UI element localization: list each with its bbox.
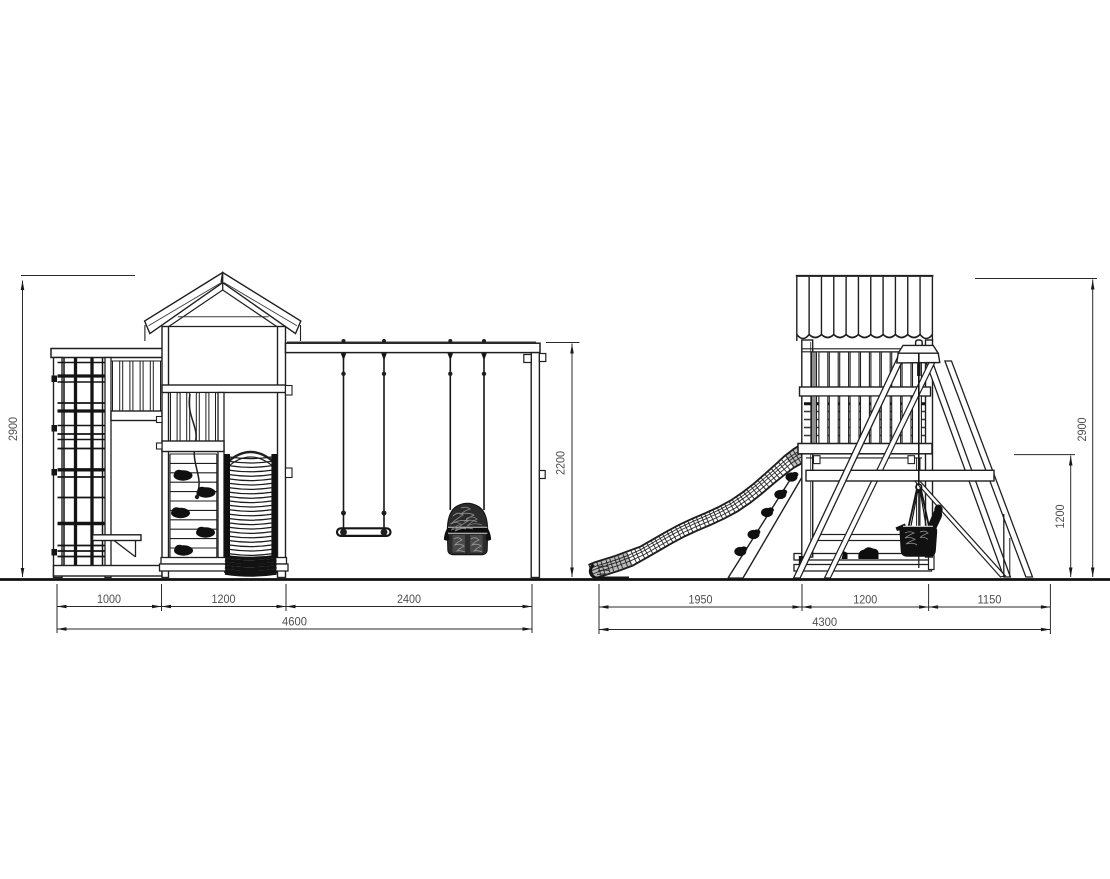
svg-text:1950: 1950 [689,593,713,607]
svg-text:1200: 1200 [1053,504,1067,528]
svg-text:2400: 2400 [397,592,421,606]
svg-text:4300: 4300 [812,615,837,629]
svg-text:2200: 2200 [554,451,568,475]
svg-text:2900: 2900 [6,417,20,441]
svg-text:1150: 1150 [978,593,1002,607]
svg-text:1200: 1200 [212,592,236,606]
svg-text:2900: 2900 [1075,417,1089,441]
svg-text:4600: 4600 [282,615,307,629]
svg-text:1000: 1000 [97,592,121,606]
svg-text:1200: 1200 [853,593,877,607]
